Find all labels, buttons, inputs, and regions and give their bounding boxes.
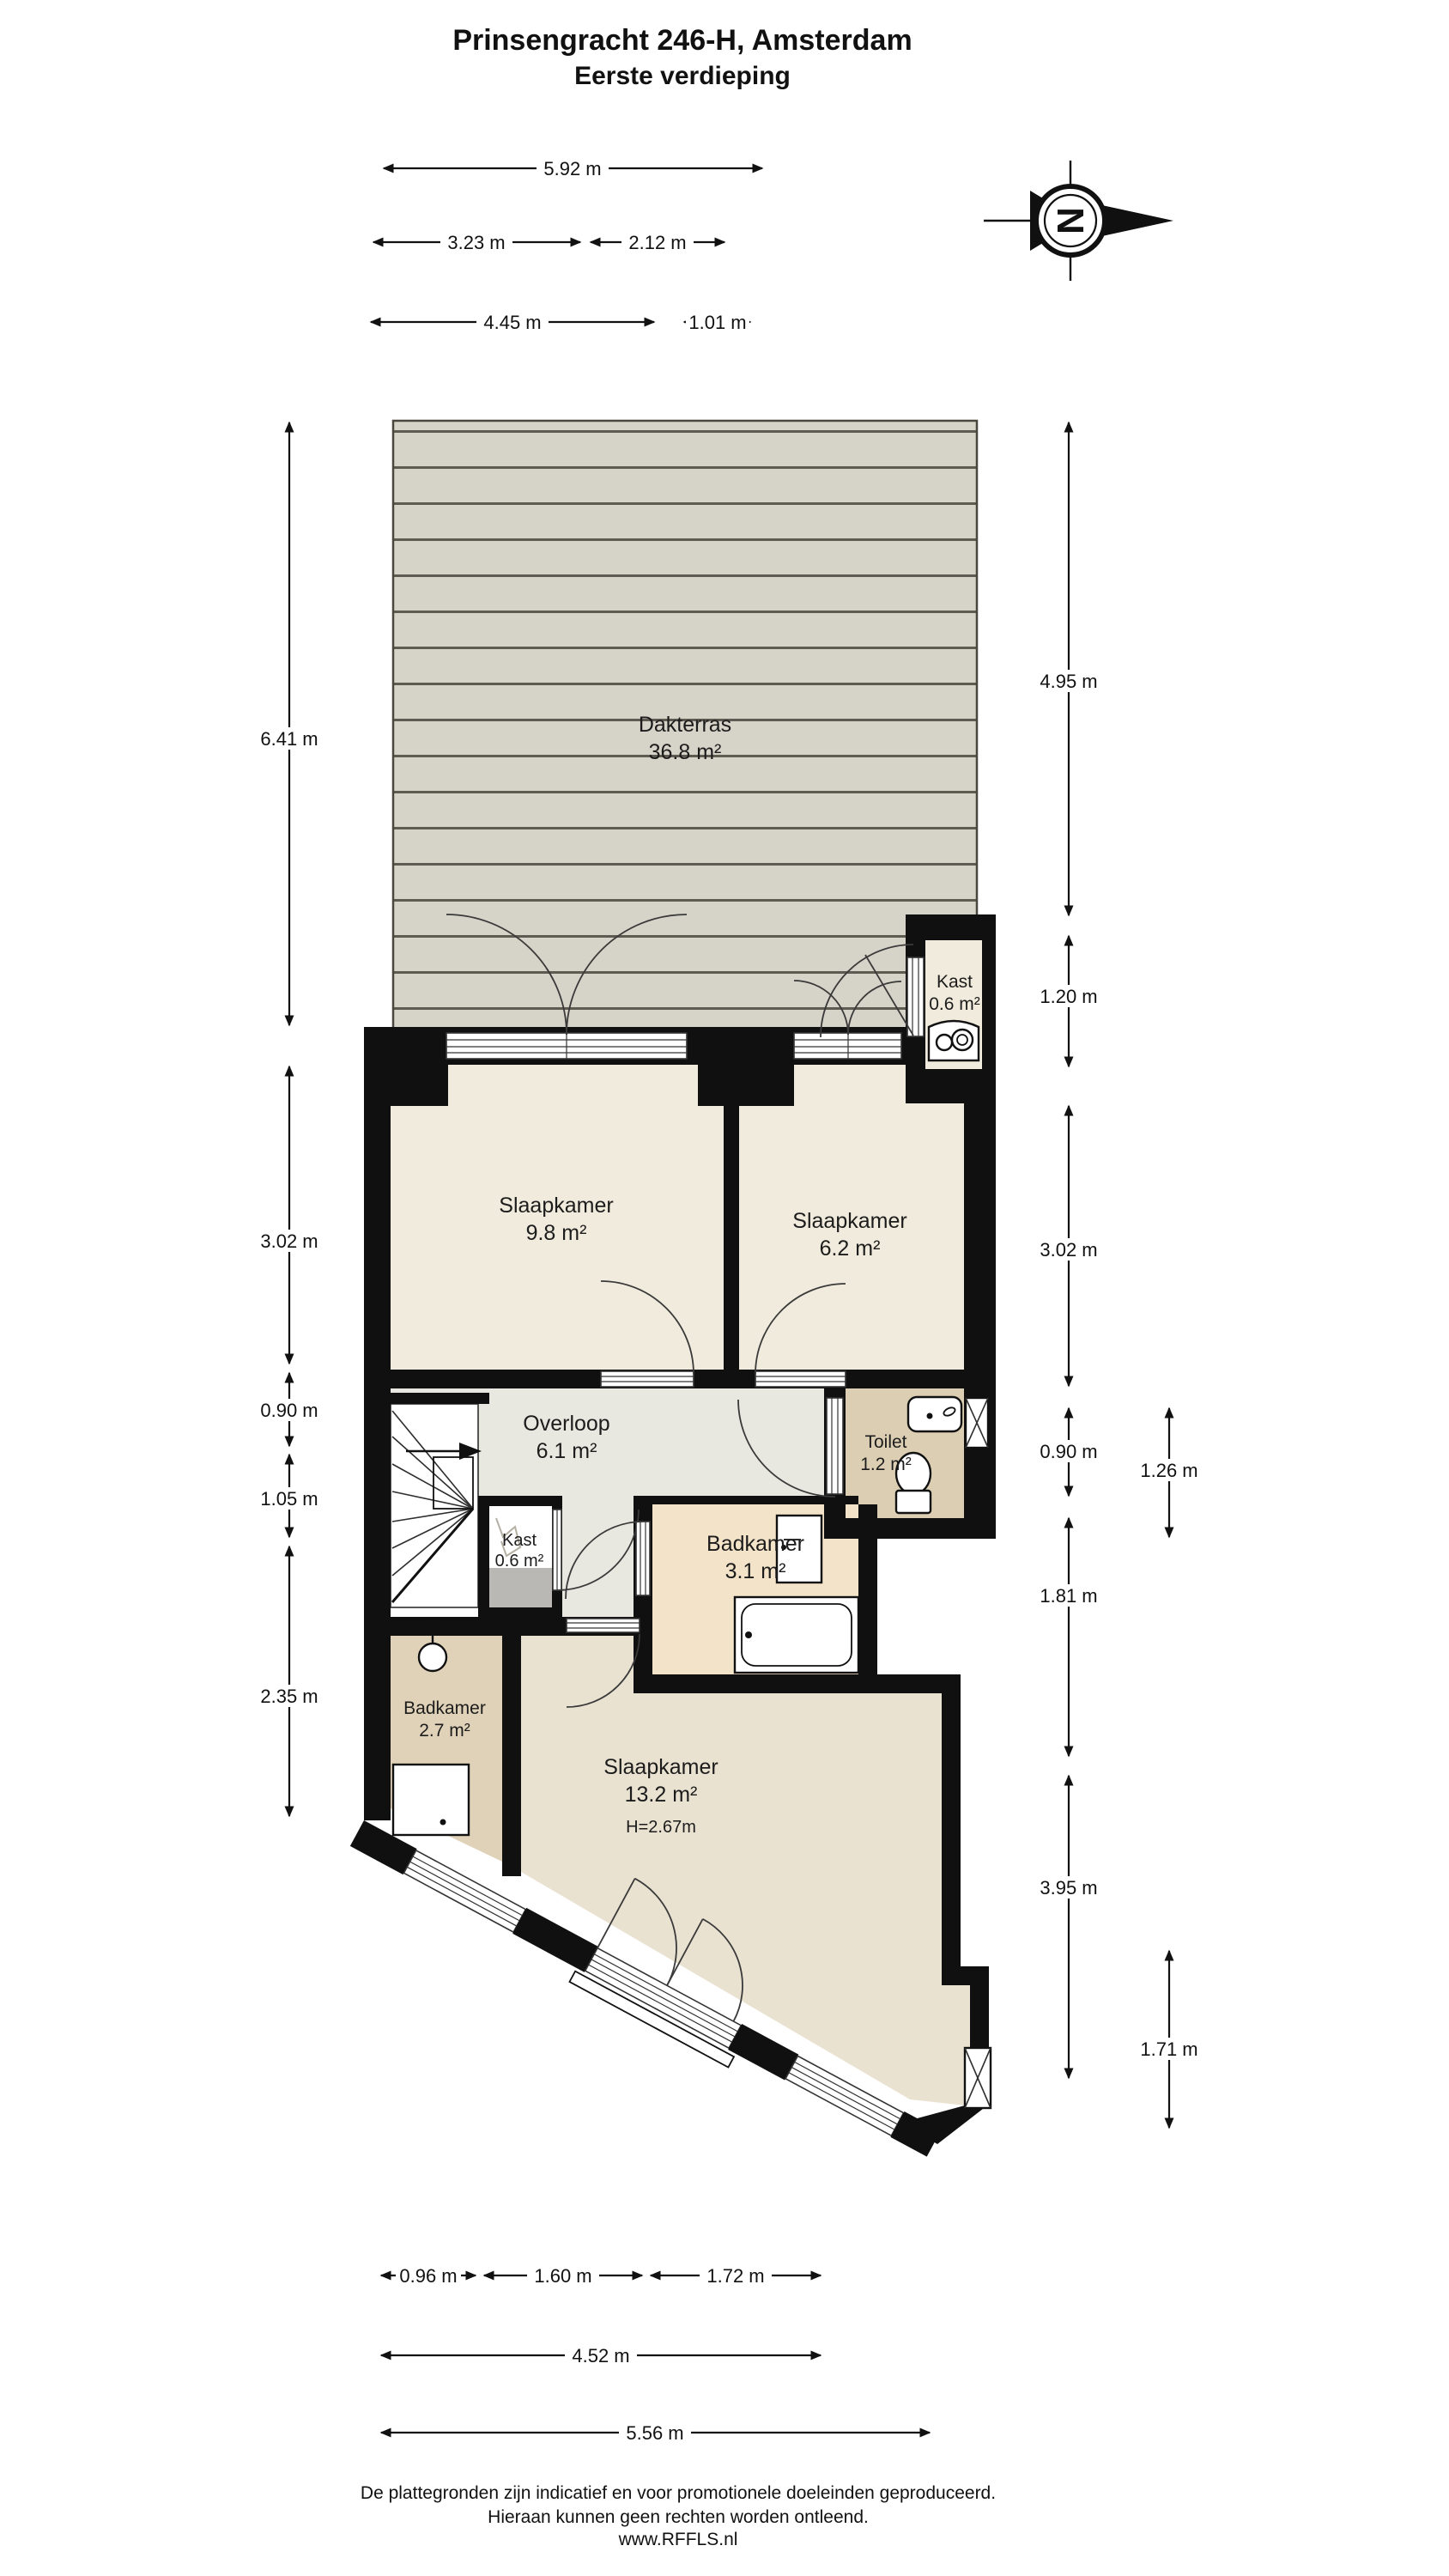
room-label-dakterras: Dakterras — [639, 713, 731, 737]
floorplan-page: Prinsengracht 246-H, Amsterdam Eerste ve… — [0, 0, 1449, 2576]
svg-text:1.01 m: 1.01 m — [688, 312, 746, 333]
svg-text:1.71 m: 1.71 m — [1140, 2038, 1197, 2060]
dimension-right-090: 0.90 m — [1033, 1408, 1105, 1496]
room-label-overloop: Overloop — [523, 1412, 609, 1436]
svg-text:1.26 m: 1.26 m — [1140, 1460, 1197, 1481]
dimension-left-090: 0.90 m — [253, 1373, 325, 1446]
svg-text:4.52 m: 4.52 m — [572, 2345, 629, 2366]
svg-text:1.60 m: 1.60 m — [534, 2265, 591, 2287]
room-area-slaapkamer-132: 13.2 m² — [625, 1783, 698, 1807]
bedroom-98-floor — [391, 1065, 724, 1374]
room-area-slaapkamer-62: 6.2 m² — [820, 1236, 881, 1261]
dimension-bottom-160: 1.60 m — [484, 2264, 642, 2287]
room-label-slaapkamer-98: Slaapkamer — [499, 1194, 613, 1218]
svg-text:3.95 m: 3.95 m — [1040, 1877, 1097, 1899]
svg-text:4.95 m: 4.95 m — [1040, 671, 1097, 692]
dimension-top-323: 3.23 m — [373, 231, 580, 253]
svg-text:4.45 m: 4.45 m — [483, 312, 541, 333]
dimension-bottom-556: 5.56 m — [381, 2421, 930, 2444]
room-area-kast-top: 0.6 m² — [929, 994, 980, 1014]
room-label-kast-mid: Kast — [502, 1531, 537, 1550]
dimension-right-181: 1.81 m — [1033, 1518, 1105, 1756]
roof-terrace-deck — [393, 421, 977, 1054]
room-area-badkamer-27: 2.7 m² — [419, 1721, 470, 1741]
svg-text:0.96 m: 0.96 m — [399, 2265, 457, 2287]
floorplan-canvas: Prinsengracht 246-H, Amsterdam Eerste ve… — [0, 0, 1449, 2576]
room-label-kast-top: Kast — [937, 972, 973, 992]
dimensions-bottom: 0.96 m 1.60 m 1.72 m 4.52 m 5.56 m — [381, 2264, 930, 2444]
bathtub — [735, 1597, 858, 1673]
svg-text:0.90 m: 0.90 m — [260, 1400, 318, 1421]
room-area-toilet: 1.2 m² — [860, 1455, 912, 1474]
svg-text:5.56 m: 5.56 m — [626, 2422, 683, 2444]
page-subtitle: Eerste verdieping — [574, 62, 791, 90]
room-label-slaapkamer-62: Slaapkamer — [792, 1209, 906, 1233]
shaft-window-top — [966, 1398, 988, 1448]
dimension-bottom-452: 4.52 m — [381, 2344, 821, 2366]
disclaimer-line-2: Hieraan kunnen geen rechten worden ontle… — [488, 2507, 869, 2527]
compass: N — [984, 161, 1173, 281]
shower-27 — [393, 1765, 469, 1835]
dimension-left-105: 1.05 m — [253, 1455, 325, 1537]
dimensions-top: 5.92 m 3.23 m 2.12 m 4.45 m 1.01 m — [371, 157, 762, 333]
dimension-right-495: 4.95 m — [1033, 422, 1105, 915]
room-area-overloop: 6.1 m² — [537, 1439, 597, 1463]
svg-text:6.41 m: 6.41 m — [260, 728, 318, 750]
svg-text:1.05 m: 1.05 m — [260, 1488, 318, 1510]
dimensions-right: 4.95 m 1.20 m 3.02 m 0.90 m 1.26 m 1.81 … — [1033, 422, 1205, 2128]
room-label-badkamer-31: Badkamer — [706, 1532, 804, 1556]
dimension-right-302: 3.02 m — [1033, 1106, 1105, 1386]
dimension-top-592: 5.92 m — [384, 157, 762, 179]
room-label-toilet: Toilet — [864, 1432, 906, 1452]
shaft-window-bottom — [965, 2048, 991, 2108]
room-area-badkamer-31: 3.1 m² — [725, 1559, 786, 1583]
closet-mid-gray-zone — [489, 1568, 552, 1607]
floor-plan: Dakterras 36.8 m² Kast 0.6 m² Slaapkamer… — [343, 421, 996, 2171]
toilet-sink — [908, 1397, 961, 1431]
svg-text:3.02 m: 3.02 m — [1040, 1239, 1097, 1261]
dimension-bottom-172: 1.72 m — [651, 2264, 821, 2287]
disclaimer-line-1: De plattegronden zijn indicatief en voor… — [361, 2483, 996, 2503]
dimension-left-641: 6.41 m — [253, 422, 325, 1025]
dimensions-left: 6.41 m 3.02 m 0.90 m 1.05 m 2.35 m — [253, 422, 325, 1816]
page-title: Prinsengracht 246-H, Amsterdam — [452, 24, 912, 57]
dimension-right-120: 1.20 m — [1033, 936, 1105, 1066]
room-area-dakterras: 36.8 m² — [649, 740, 722, 764]
dimension-right-395: 3.95 m — [1033, 1776, 1105, 2078]
room-label-badkamer-27: Badkamer — [403, 1698, 486, 1718]
svg-text:3.02 m: 3.02 m — [260, 1230, 318, 1252]
svg-text:3.23 m: 3.23 m — [447, 232, 505, 253]
svg-text:0.90 m: 0.90 m — [1040, 1441, 1097, 1462]
svg-text:1.81 m: 1.81 m — [1040, 1585, 1097, 1607]
room-height-slaapkamer-132: H=2.67m — [626, 1818, 696, 1837]
title-block: Prinsengracht 246-H, Amsterdam Eerste ve… — [452, 24, 912, 90]
svg-text:5.92 m: 5.92 m — [543, 158, 601, 179]
svg-text:1.72 m: 1.72 m — [706, 2265, 764, 2287]
dimension-right-171: 1.71 m — [1133, 1951, 1205, 2128]
washing-machine-icon — [929, 1021, 979, 1060]
room-area-kast-mid: 0.6 m² — [495, 1552, 544, 1571]
staircase-floor — [391, 1404, 478, 1607]
room-area-slaapkamer-98: 9.8 m² — [526, 1221, 587, 1245]
disclaimer-line-3: www.RFFLS.nl — [618, 2530, 738, 2549]
dimension-right-126: 1.26 m — [1133, 1408, 1205, 1537]
dimension-top-445: 4.45 m — [371, 311, 654, 333]
dimension-left-235: 2.35 m — [253, 1546, 325, 1816]
dimension-top-101: 1.01 m — [684, 311, 750, 333]
dimension-top-212: 2.12 m — [591, 231, 724, 253]
svg-text:2.12 m: 2.12 m — [628, 232, 686, 253]
compass-north-label: N — [1049, 207, 1091, 234]
svg-text:1.20 m: 1.20 m — [1040, 986, 1097, 1007]
svg-text:2.35 m: 2.35 m — [260, 1686, 318, 1707]
room-label-slaapkamer-132: Slaapkamer — [603, 1755, 718, 1779]
dimension-left-302: 3.02 m — [253, 1066, 325, 1364]
disclaimer: De plattegronden zijn indicatief en voor… — [361, 2483, 996, 2549]
dimension-bottom-096: 0.96 m — [381, 2264, 476, 2287]
